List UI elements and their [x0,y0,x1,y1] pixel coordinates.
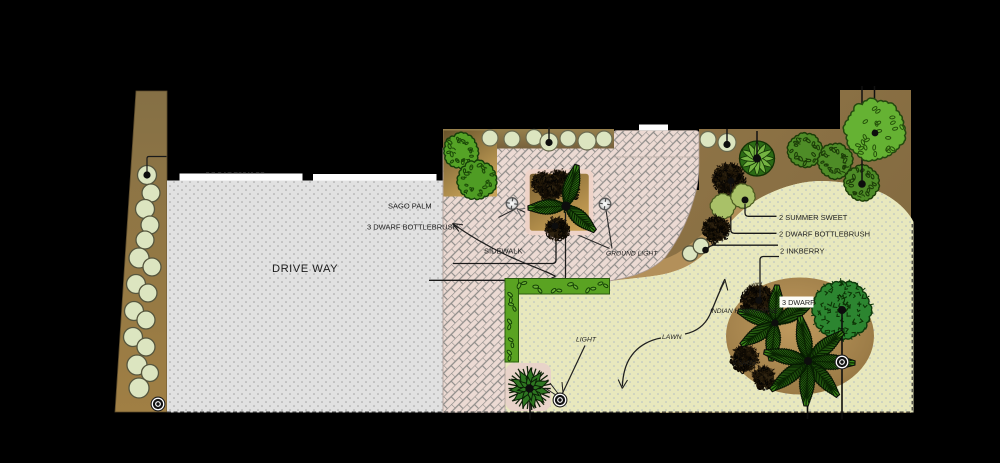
svg-text:SIDEWALK: SIDEWALK [484,247,522,256]
svg-text:LIGHT: LIGHT [576,337,597,344]
svg-text:DRIVE WAY: DRIVE WAY [272,263,338,275]
svg-text:LAWN: LAWN [662,334,682,341]
svg-text:2 DWARF BOTTLEBRUSH: 2 DWARF BOTTLEBRUSH [779,230,870,239]
svg-text:3 DWARF BOTTLEBRUSH: 3 DWARF BOTTLEBRUSH [367,223,458,232]
svg-text:2 SAGO: 2 SAGO [733,360,756,367]
svg-text:INDIAN HAWTHORNE: INDIAN HAWTHORNE [710,308,779,315]
svg-text:SAGO PALM: SAGO PALM [388,202,432,211]
svg-text:3 DWARF: 3 DWARF [782,298,815,307]
svg-text:2 INKBERRY: 2 INKBERRY [780,247,824,256]
svg-text:GROUND LIGHT: GROUND LIGHT [606,250,658,257]
svg-text:2 SUMMER SWEET: 2 SUMMER SWEET [779,213,848,222]
